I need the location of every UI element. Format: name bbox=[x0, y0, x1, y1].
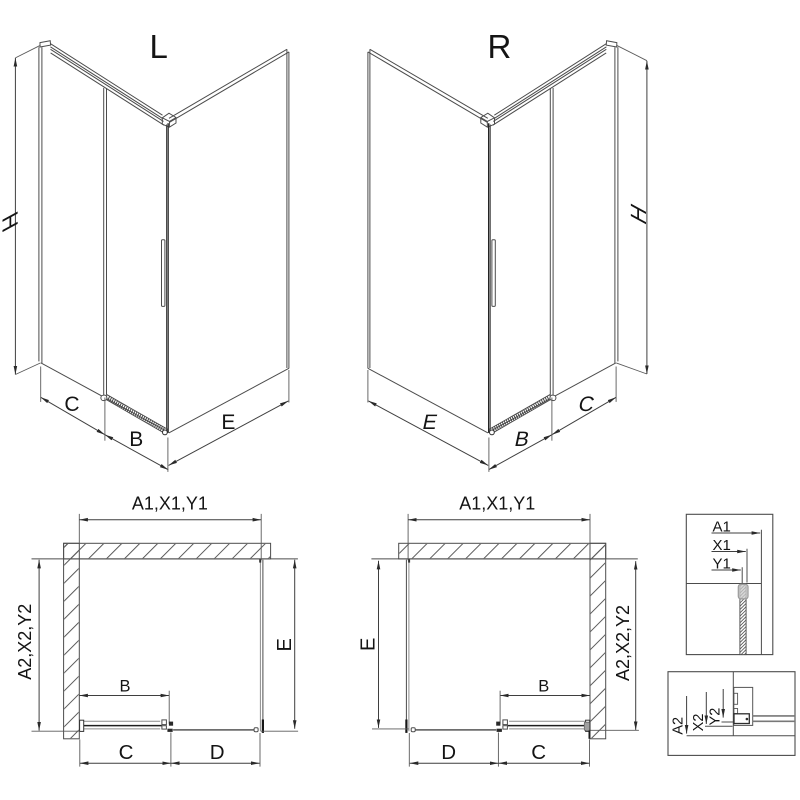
svg-text:E: E bbox=[358, 638, 380, 651]
svg-text:E: E bbox=[274, 638, 296, 651]
svg-text:D: D bbox=[441, 741, 456, 764]
svg-text:B: B bbox=[119, 677, 130, 695]
svg-text:B: B bbox=[129, 428, 143, 451]
svg-text:A1,X1,Y1: A1,X1,Y1 bbox=[459, 494, 535, 514]
svg-text:D: D bbox=[210, 741, 225, 764]
svg-text:C: C bbox=[119, 741, 134, 764]
svg-text:A2,X2,Y2: A2,X2,Y2 bbox=[613, 605, 633, 681]
svg-text:B: B bbox=[538, 677, 549, 695]
svg-text:H: H bbox=[0, 207, 22, 236]
svg-text:E: E bbox=[420, 411, 439, 434]
svg-text:X2: X2 bbox=[691, 714, 707, 732]
svg-text:A1,X1,Y1: A1,X1,Y1 bbox=[132, 494, 208, 514]
svg-text:A2,X2,Y2: A2,X2,Y2 bbox=[15, 604, 35, 680]
svg-text:C: C bbox=[576, 393, 596, 416]
svg-text:Y2: Y2 bbox=[708, 708, 724, 726]
svg-text:E: E bbox=[221, 411, 235, 434]
svg-text:R: R bbox=[488, 28, 512, 65]
svg-text:C: C bbox=[64, 393, 79, 416]
svg-text:C: C bbox=[531, 741, 546, 764]
svg-text:A2: A2 bbox=[671, 717, 687, 735]
svg-text:L: L bbox=[150, 28, 168, 65]
